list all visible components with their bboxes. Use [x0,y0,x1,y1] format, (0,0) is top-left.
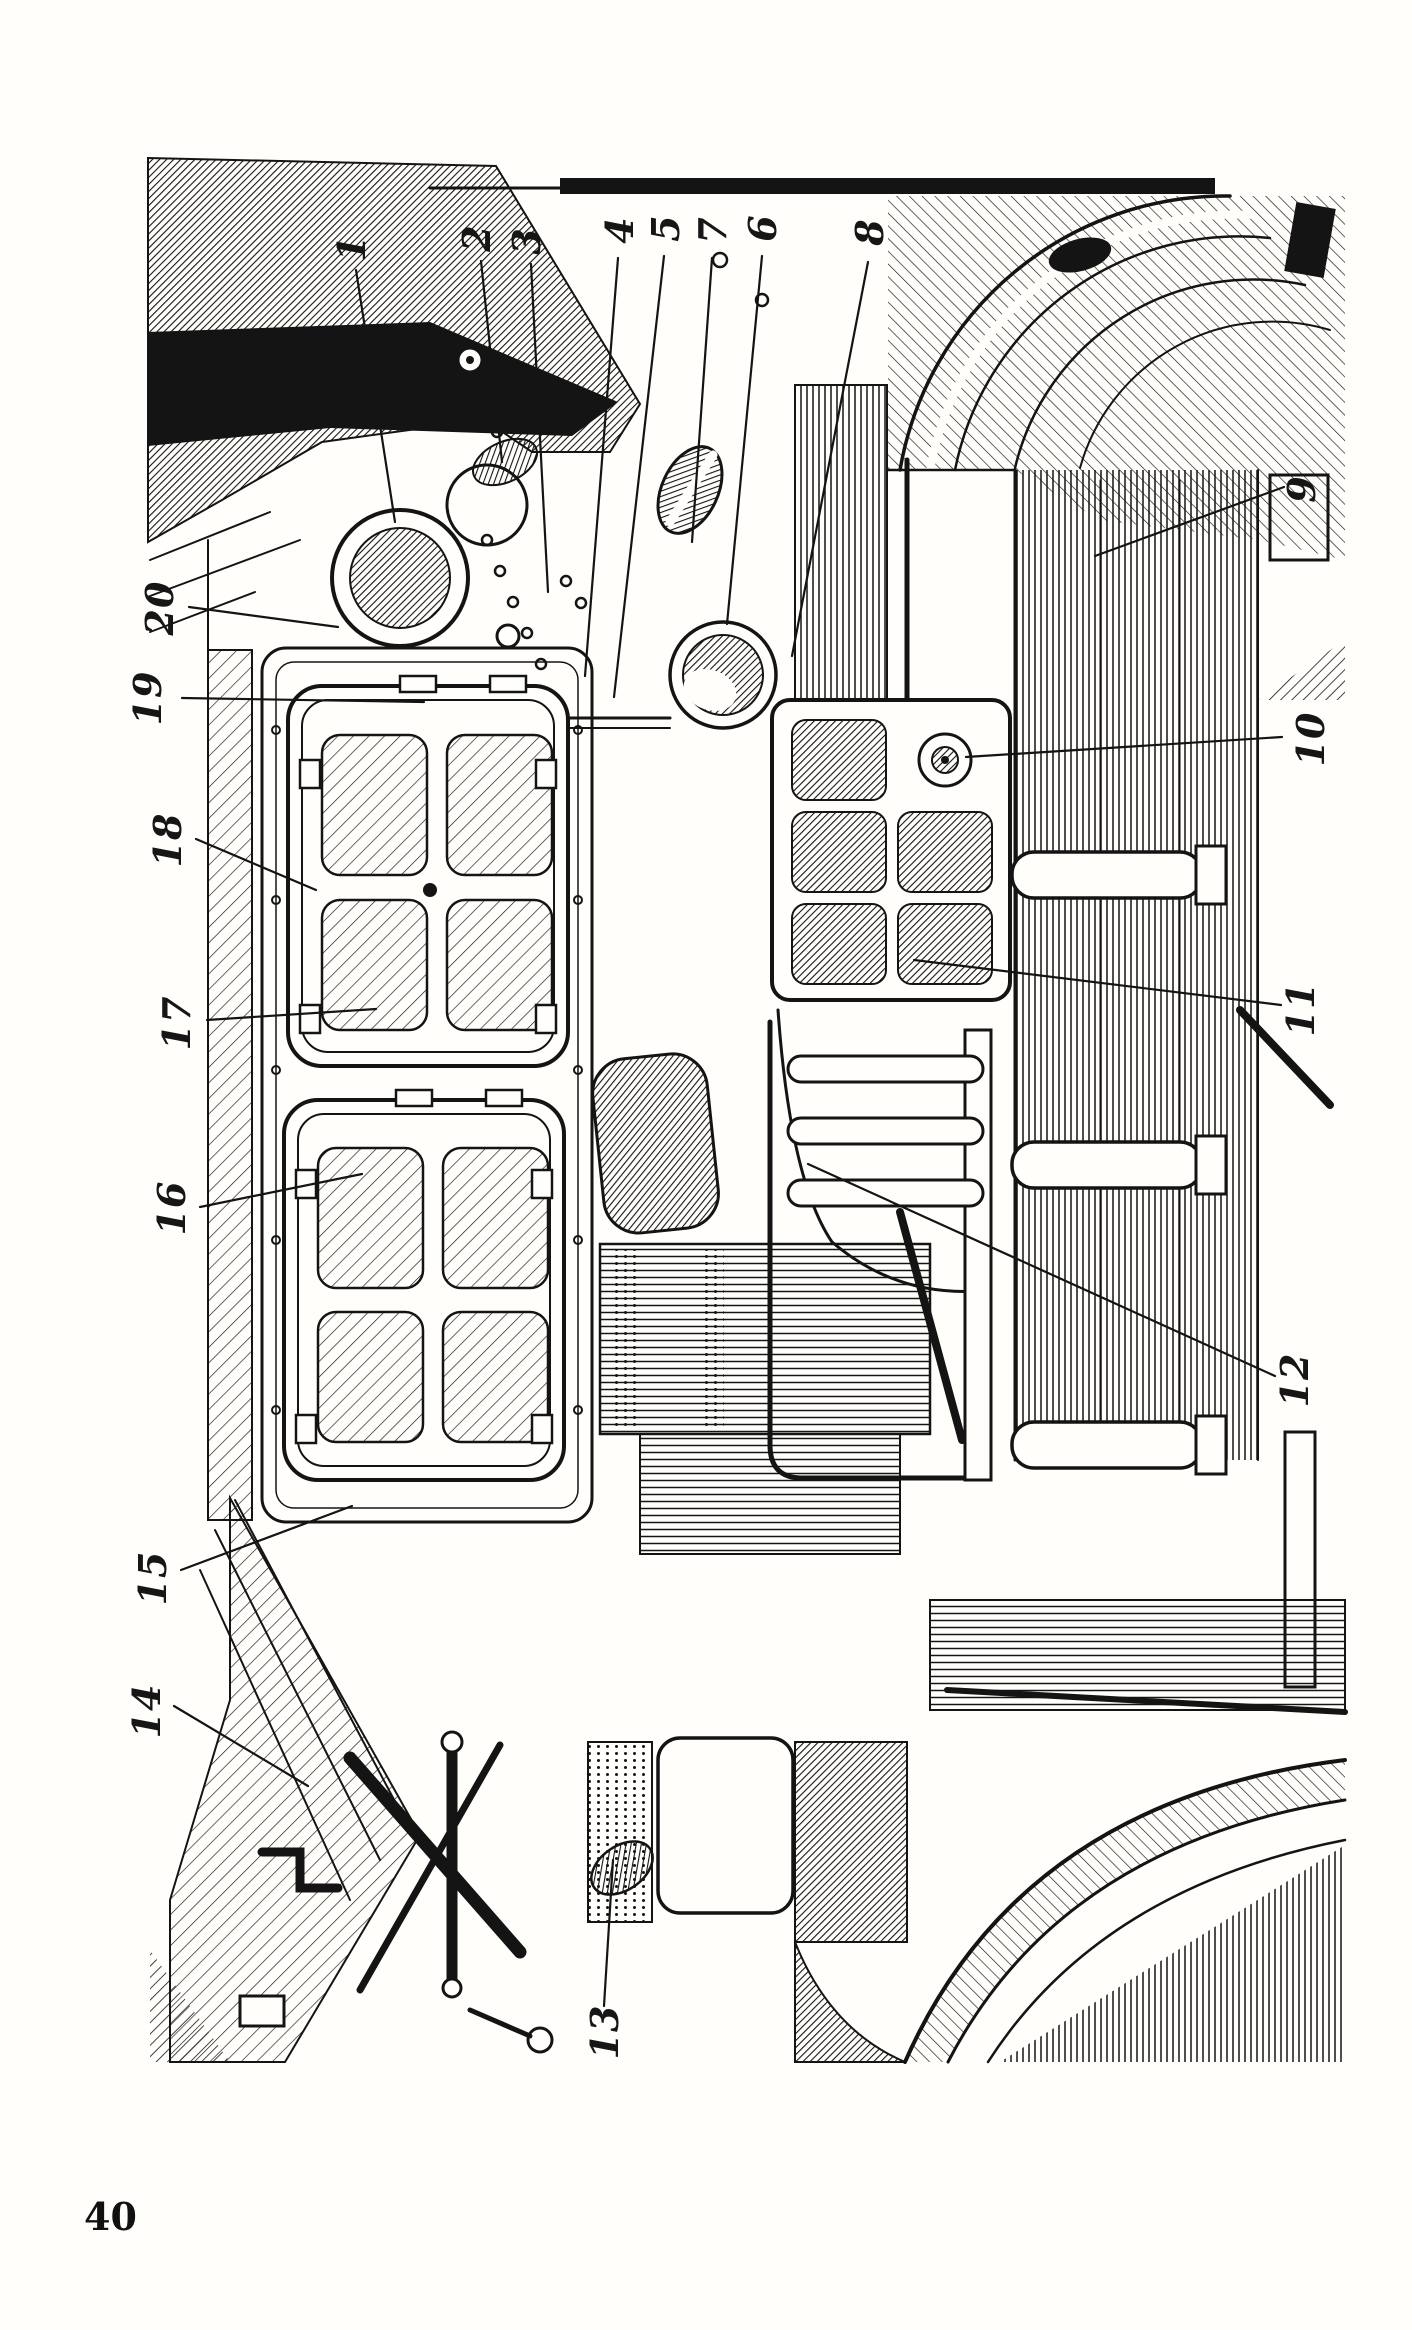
callout-3: 3 [508,227,546,254]
callout-18: 18 [149,813,187,868]
callout-19: 19 [129,671,167,726]
lever-assembly [150,1498,907,2062]
callout-9: 9 [1283,475,1321,502]
callout-8: 8 [851,218,889,245]
top-rail [430,178,1215,194]
hatch-window-upper [288,676,568,1066]
callout-7: 7 [694,216,732,243]
book-page: { "page": { "number": "40" }, "figure": … [0,0,1412,2330]
callout-20: 20 [141,581,179,636]
callout-6: 6 [744,214,782,241]
callout-14: 14 [128,1684,166,1739]
callout-10: 10 [1292,712,1330,767]
hatch-window-lower [284,1090,564,1480]
figure-artwork [0,0,1412,2330]
callout-17: 17 [158,996,196,1051]
page-number: 40 [84,2194,137,2239]
callout-15: 15 [134,1551,172,1606]
callout-13: 13 [586,2005,624,2060]
callout-11: 11 [1282,982,1320,1037]
fender-arcs [905,1690,1345,2062]
callout-2: 2 [458,224,496,251]
callout-5: 5 [647,214,685,241]
callout-16: 16 [153,1181,191,1236]
callout-4: 4 [601,216,639,243]
callout-12: 12 [1276,1353,1314,1408]
hull-side [1012,470,1345,1687]
callout-1: 1 [333,234,371,261]
